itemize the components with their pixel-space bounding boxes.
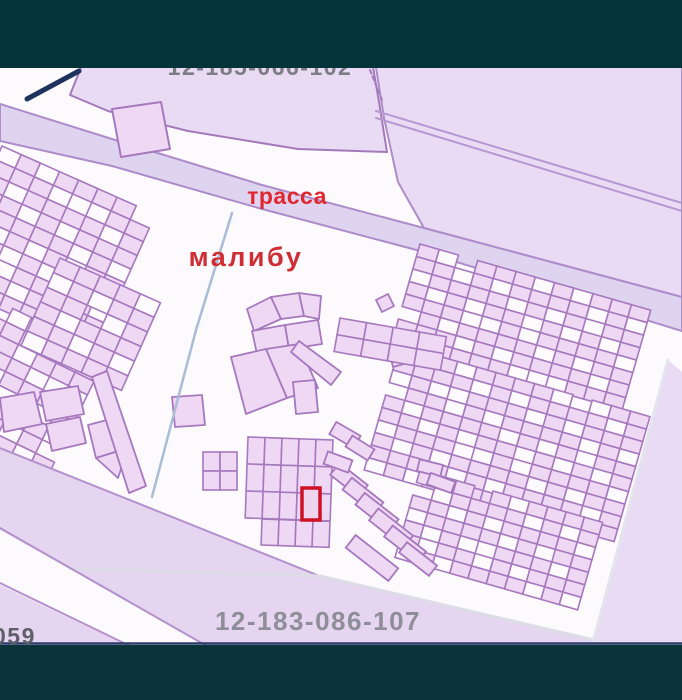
parcel[interactable] bbox=[295, 520, 313, 547]
parcel[interactable] bbox=[220, 471, 237, 490]
parcel[interactable] bbox=[312, 521, 330, 548]
cadastral-map-screenshot: 12-185-066-102 трасса малибу 12-183-086-… bbox=[0, 0, 682, 700]
parcel[interactable] bbox=[203, 471, 220, 490]
parcel[interactable] bbox=[334, 335, 364, 356]
area-label: малибу bbox=[189, 242, 304, 272]
parcel[interactable] bbox=[261, 519, 279, 546]
parcel[interactable] bbox=[262, 492, 280, 520]
parcel[interactable] bbox=[281, 438, 299, 466]
parcel[interactable] bbox=[40, 386, 84, 421]
parcel-number-bottom: 12-183-086-107 bbox=[215, 606, 421, 636]
map-geometry bbox=[0, 40, 682, 660]
letterbox-top-bar bbox=[0, 0, 682, 68]
letterbox-bottom-bar bbox=[0, 645, 682, 700]
parcel[interactable] bbox=[264, 438, 282, 466]
parcel[interactable] bbox=[220, 452, 237, 471]
parcel[interactable] bbox=[387, 344, 417, 365]
parcel[interactable] bbox=[280, 465, 298, 493]
parcel[interactable] bbox=[279, 492, 297, 520]
parcel[interactable] bbox=[414, 349, 444, 370]
cadastral-map[interactable]: 12-185-066-102 трасса малибу 12-183-086-… bbox=[0, 0, 682, 700]
parcel[interactable] bbox=[293, 380, 318, 414]
parcel[interactable] bbox=[0, 392, 42, 432]
parcel[interactable] bbox=[263, 465, 281, 493]
parcel[interactable] bbox=[278, 520, 296, 547]
parcel[interactable] bbox=[112, 102, 170, 157]
parcel[interactable] bbox=[203, 452, 220, 471]
parcel[interactable] bbox=[247, 437, 265, 465]
road-label: трасса bbox=[247, 183, 327, 209]
parcel[interactable] bbox=[245, 491, 263, 519]
parcel[interactable] bbox=[298, 439, 316, 467]
parcel[interactable] bbox=[361, 339, 391, 360]
parcel[interactable] bbox=[246, 464, 264, 492]
highlighted-parcel[interactable] bbox=[302, 488, 320, 520]
